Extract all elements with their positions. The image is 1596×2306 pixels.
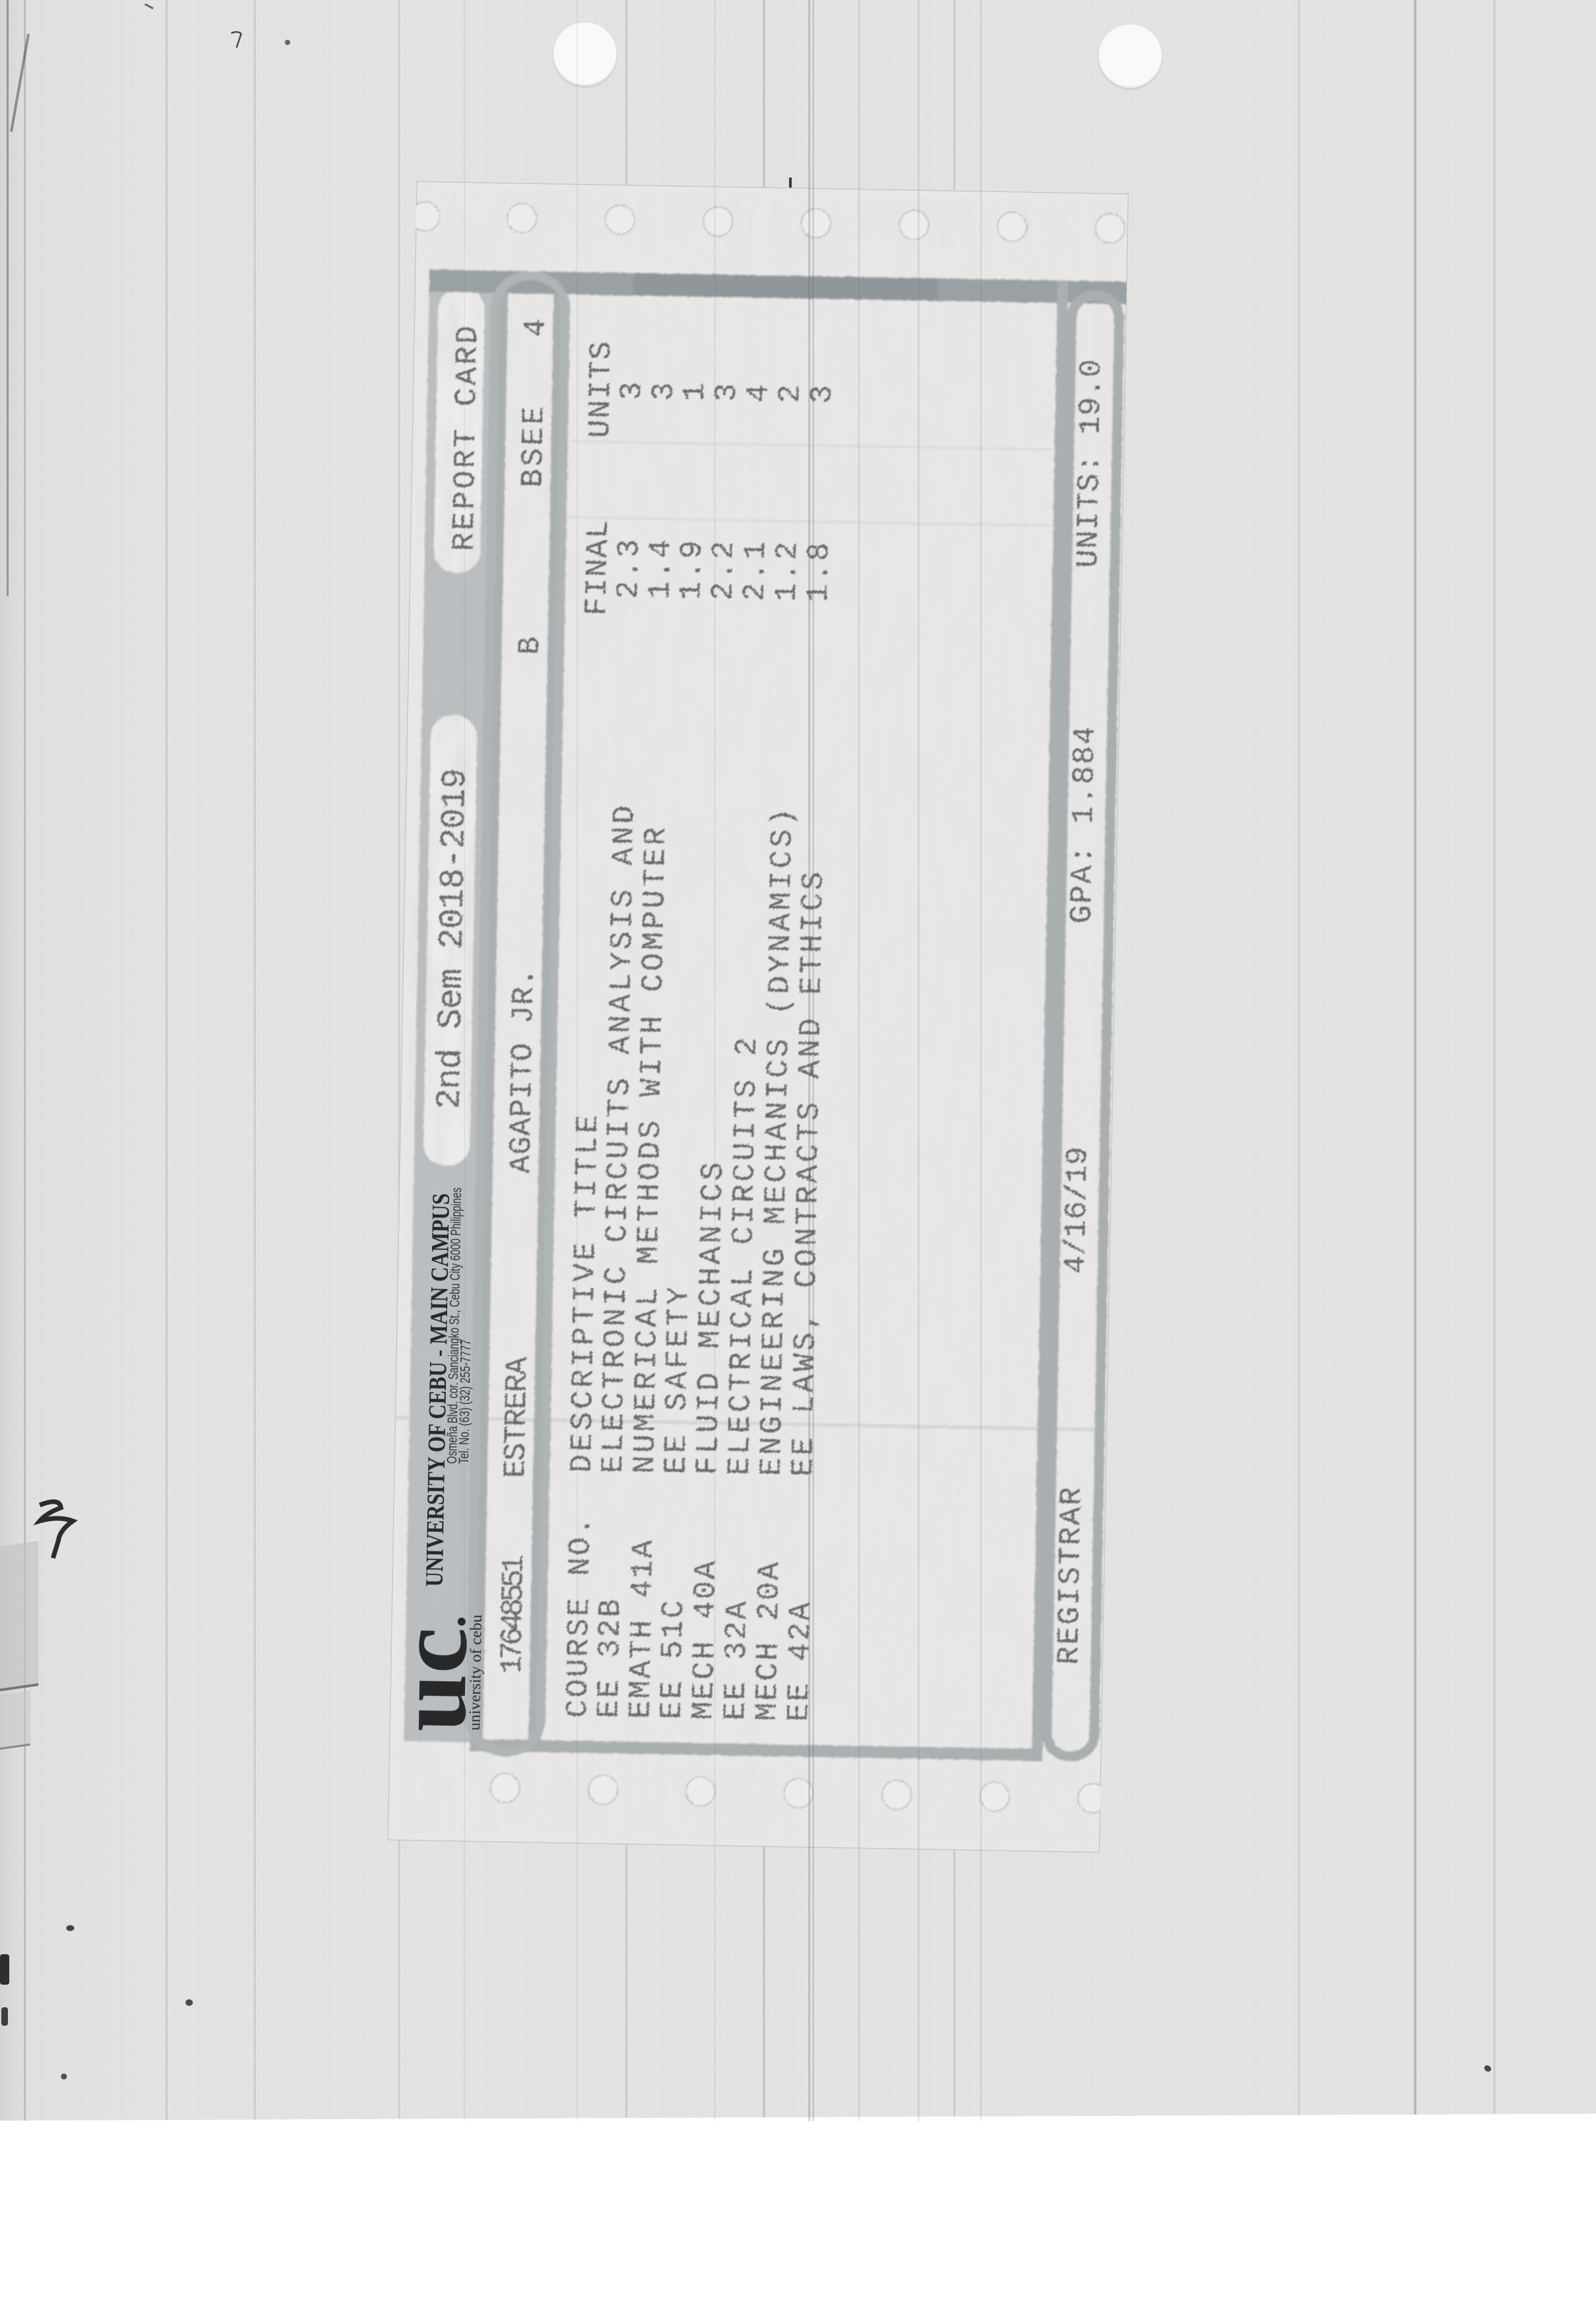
- svg-text:UNITS: 19.0: UNITS: 19.0: [1071, 359, 1109, 568]
- svg-text:2.1: 2.1: [738, 541, 774, 602]
- svg-text:B: B: [513, 636, 547, 655]
- svg-text:1.2: 1.2: [770, 542, 806, 602]
- svg-text:17648551: 17648551: [495, 1555, 531, 1675]
- svg-text:1.9: 1.9: [674, 540, 710, 600]
- svg-text:FINAL: FINAL: [580, 520, 616, 616]
- svg-text:3: 3: [647, 382, 681, 401]
- svg-text:UNITS: UNITS: [583, 341, 619, 439]
- svg-text:1.4: 1.4: [643, 539, 679, 600]
- svg-text:ESTRERA: ESTRERA: [499, 1356, 535, 1478]
- svg-text:2: 2: [773, 384, 808, 403]
- svg-text:4: 4: [741, 384, 776, 403]
- svg-text:Tel. No. (63) (32) 255-7777: Tel. No. (63) (32) 255-7777: [456, 1339, 474, 1464]
- svg-text:1: 1: [678, 383, 712, 402]
- svg-text:2.3: 2.3: [612, 539, 647, 600]
- svg-text:3: 3: [615, 382, 649, 401]
- svg-text:REPORT CARD: REPORT CARD: [447, 325, 486, 551]
- svg-text:1.8: 1.8: [802, 543, 837, 603]
- svg-text:AGAPITO JR.: AGAPITO JR.: [504, 968, 542, 1174]
- svg-text:4/16/19: 4/16/19: [1059, 1147, 1095, 1275]
- svg-text:REGISTRAR: REGISTRAR: [1052, 1487, 1090, 1665]
- svg-text:2.2: 2.2: [706, 541, 742, 601]
- svg-text:2nd Sem 2018-2019: 2nd Sem 2018-2019: [430, 768, 475, 1110]
- svg-text:university of cebu: university of cebu: [466, 1614, 486, 1730]
- svg-text:4: 4: [519, 318, 553, 337]
